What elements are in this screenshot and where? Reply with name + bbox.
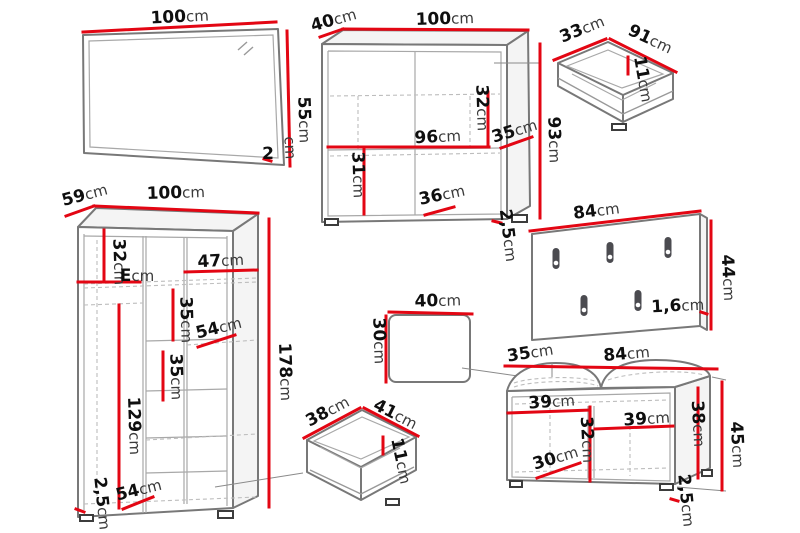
coat-hook xyxy=(665,237,672,258)
seat-cushion-width-label: 40cm xyxy=(414,290,461,312)
wardrobe-plinth-label: 2,5cm xyxy=(89,476,114,531)
bottom-drawer-diagram: 38cm 41cm 11cm xyxy=(302,392,420,505)
wardrobe-leg xyxy=(80,515,93,521)
sideboard-height-label: 93cm xyxy=(543,116,565,163)
wardrobe-leg xyxy=(218,511,233,518)
wardrobe-hanging-label: 129cm xyxy=(123,396,145,455)
coat-hook xyxy=(635,290,642,311)
top-drawer-diagram: 33cm 91cm 11cm xyxy=(554,11,676,130)
bench-leg xyxy=(510,481,522,487)
mirror-thickness-unit: cm xyxy=(280,136,299,160)
coat-rack-panel xyxy=(532,214,700,340)
seat-cushion-diagram: 40cm 30cm xyxy=(368,290,532,382)
wardrobe-diagram: 59cm 100cm 32cm Ecm 47cm 35cm 54cm 35cm … xyxy=(60,179,303,530)
coat-rack-height-label: 44cm xyxy=(717,254,739,302)
bench-height-extension xyxy=(712,377,726,380)
bench-plinth-label: 2,5cm xyxy=(673,473,698,528)
top-drawer-foot xyxy=(612,124,626,130)
seat-cushion-shape xyxy=(389,315,470,382)
bottom-drawer-foot xyxy=(386,499,399,505)
sideboard-diagram: 40cm 100cm 96cm 32cm 31cm 36cm 35cm 93cm… xyxy=(309,4,565,263)
sideboard-inner-left-label: 31cm xyxy=(347,151,369,198)
wardrobe-shelf-depth-label: Ecm xyxy=(120,266,154,286)
coat-rack-diagram: 84cm 44cm 1,6cm xyxy=(530,198,739,340)
wardrobe-shelf-top-label: 47cm xyxy=(197,250,245,272)
seat-cushion-depth-label: 30cm xyxy=(368,317,390,364)
mirror-thickness-label: 2 xyxy=(262,144,274,164)
mirror-diagram: 100cm 55cm 2 cm xyxy=(83,5,315,166)
bench-diagram: 35cm 84cm 39cm 39cm 32cm 30cm 38cm 2,5cm… xyxy=(505,340,748,528)
seat-cushion-width-dimension-line xyxy=(389,312,472,314)
bench-inner-height-label: 38cm xyxy=(687,400,709,448)
wardrobe-gap-lower-label: 35cm xyxy=(165,353,187,400)
coat-hook xyxy=(607,242,614,263)
coat-hook xyxy=(581,295,588,316)
sideboard-width-label: 100cm xyxy=(415,8,474,30)
wardrobe-height-label: 178cm xyxy=(274,342,296,401)
sideboard-inner-width-label: 96cm xyxy=(414,126,462,148)
wardrobe-gap-upper-label: 35cm xyxy=(175,296,197,343)
sideboard-leg xyxy=(325,219,338,225)
sideboard-top-face xyxy=(322,30,528,45)
furniture-dimensions-diagram: 100cm 55cm 2 cm 40cm 100cm 96cm 32cm 31c… xyxy=(0,0,800,533)
bench-leg xyxy=(702,470,712,476)
mirror-frame xyxy=(83,29,284,165)
bench-leg xyxy=(660,484,673,490)
diagram-canvas: 100cm 55cm 2 cm 40cm 100cm 96cm 32cm 31c… xyxy=(0,0,800,533)
wardrobe-width-label: 100cm xyxy=(146,182,205,204)
coat-rack-thickness-label: 1,6cm xyxy=(651,295,705,318)
bench-height-label: 45cm xyxy=(726,421,748,469)
coat-hook xyxy=(553,248,560,269)
sideboard-inner-right-label: 32cm xyxy=(471,84,493,131)
